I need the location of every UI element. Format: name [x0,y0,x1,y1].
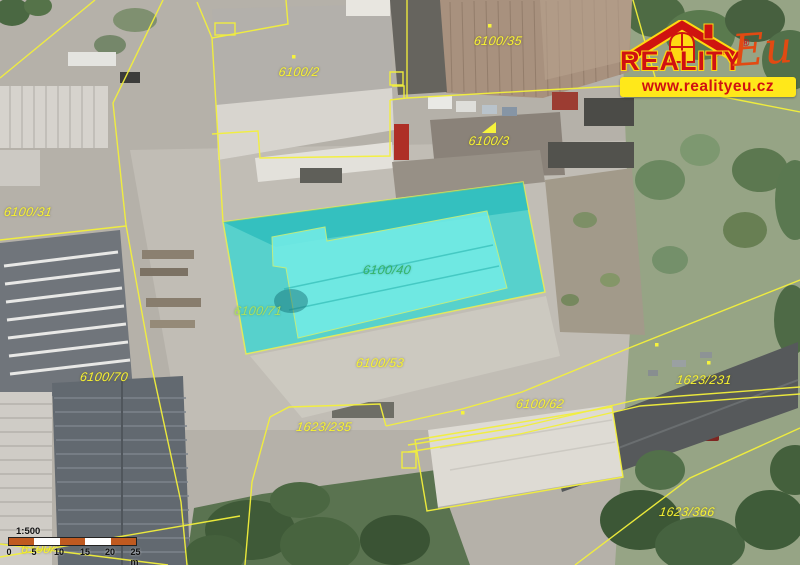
website-banner: www.realityeu.cz [620,77,796,97]
realityeu-logo: REALITY ® Eu www.realityeu.cz [620,20,798,98]
parcel-label-1623-235: 1623/235 [295,420,352,434]
scale-ratio: 1:500 [16,526,40,537]
parcel-label-6100-71: 6100/71 [233,304,283,318]
brand-eu: Eu [730,22,794,77]
parcel-label-6100-70: 6100/70 [79,370,129,384]
parcel-label-6100-35: 6100/35 [473,34,523,48]
building-6100-2 [212,4,394,182]
parcel-label-6100-3: 6100/3 [468,134,511,148]
scale-bar: 1:500 0 5 10 15 20 25 m [6,526,156,560]
website-url: www.realityeu.cz [642,78,774,96]
parcel-label-1623-231: 1623/231 [675,373,732,387]
parcel-label-6100-53: 6100/53 [355,356,405,370]
brand-reality: REALITY [620,46,743,77]
parcel-label-6100-2: 6100/2 [278,65,321,79]
scale-ticks: 0 5 10 15 20 25 m [6,547,156,559]
map-canvas: 6100/2 6100/35 6100/3 6100/31 6100/40 61… [0,0,800,565]
parcel-label-6100-40: 6100/40 [362,263,412,277]
parcel-label-1623-366: 1623/366 [658,505,715,519]
parcel-label-6100-31: 6100/31 [3,205,53,219]
scale-bar-segments [8,537,137,546]
parcel-label-6100-62: 6100/62 [515,397,565,411]
